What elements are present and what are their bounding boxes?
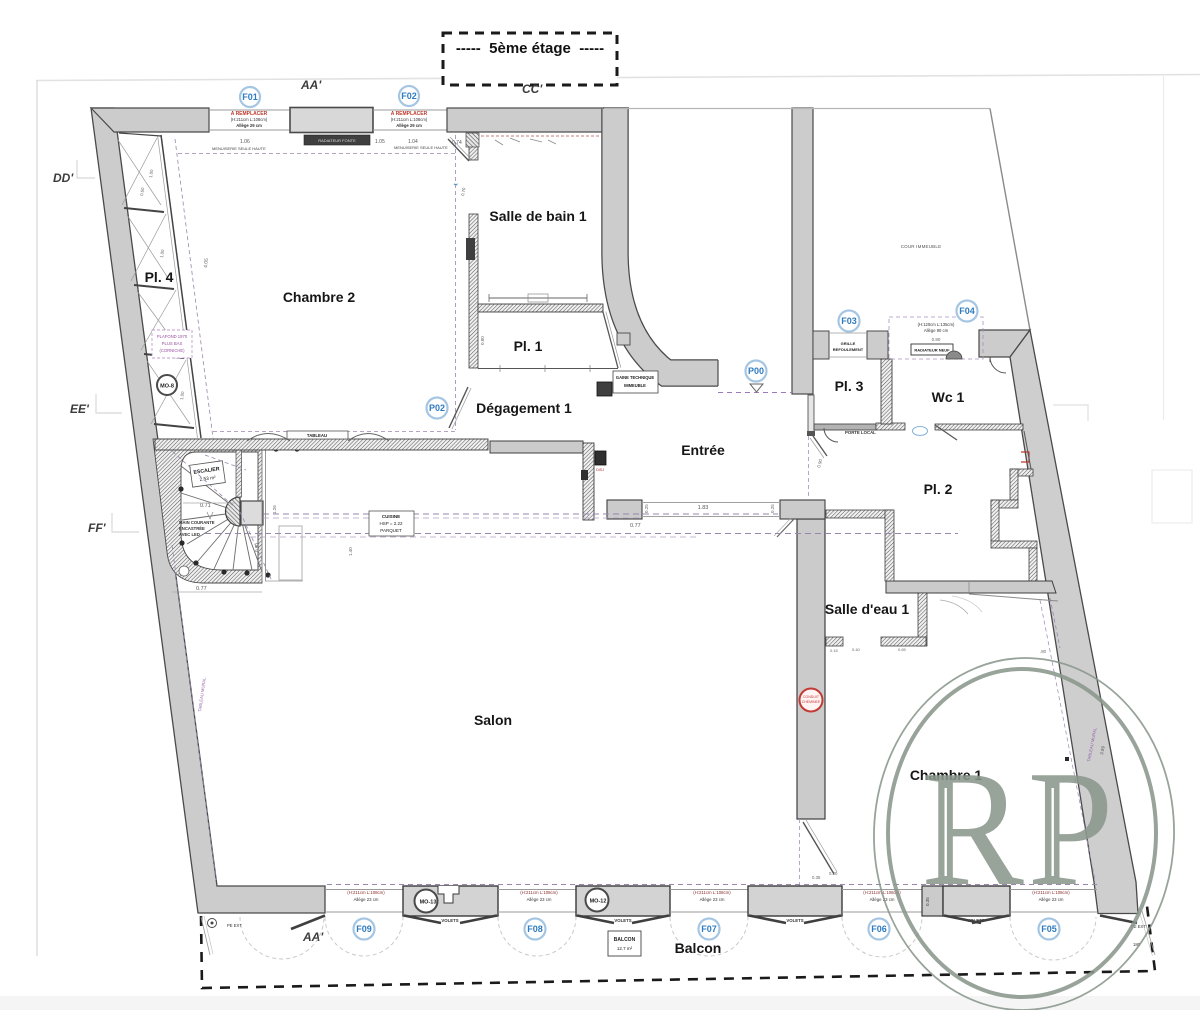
svg-text:Allège 23 cm: Allège 23 cm: [700, 897, 725, 902]
svg-text:MO-13: MO-13: [420, 900, 437, 906]
svg-text:CHEMINEE: CHEMINEE: [802, 700, 821, 704]
svg-text:Chambre 2: Chambre 2: [283, 289, 356, 305]
svg-text:Salon: Salon: [474, 712, 512, 728]
svg-text:AA': AA': [300, 78, 322, 92]
svg-text:F03: F03: [841, 316, 857, 326]
svg-text:F06: F06: [871, 924, 887, 934]
svg-text:0.15: 0.15: [830, 648, 839, 653]
svg-text:1.05: 1.05: [375, 139, 385, 145]
svg-text:EE': EE': [70, 402, 90, 416]
svg-text:0.65: 0.65: [898, 647, 907, 652]
svg-text:Pl. 1: Pl. 1: [514, 338, 543, 354]
svg-text:1.40: 1.40: [348, 547, 353, 556]
svg-text:Allège 29 cm: Allège 29 cm: [396, 123, 422, 128]
svg-text:F05: F05: [1041, 924, 1057, 934]
svg-text:4.05: 4.05: [203, 258, 210, 269]
svg-text:0.74: 0.74: [452, 140, 462, 146]
svg-text:F07: F07: [701, 924, 717, 934]
svg-text:(H:211cm L:108cm): (H:211cm L:108cm): [520, 890, 558, 895]
svg-text:0.77: 0.77: [196, 586, 207, 592]
svg-text:Dégagement 1: Dégagement 1: [476, 400, 572, 416]
svg-text:RADIATEUR FONTE: RADIATEUR FONTE: [318, 138, 356, 143]
svg-text:Entrée: Entrée: [681, 442, 725, 458]
svg-text:F08: F08: [527, 924, 543, 934]
svg-text:Allège 29 cm: Allège 29 cm: [236, 123, 262, 128]
svg-text:12.7 m²: 12.7 m²: [617, 946, 633, 951]
svg-text:DD': DD': [53, 171, 74, 185]
svg-text:AA': AA': [302, 930, 324, 944]
svg-text:MENUISERIE SEULE HAUTE: MENUISERIE SEULE HAUTE: [212, 146, 266, 151]
svg-text:1.26: 1.26: [272, 505, 277, 514]
svg-text:0.80: 0.80: [932, 337, 941, 342]
svg-text:Allège 23 cm: Allège 23 cm: [354, 897, 379, 902]
svg-text:0.25: 0.25: [644, 504, 649, 513]
svg-text:0.90: 0.90: [254, 543, 259, 552]
svg-text:0.71: 0.71: [200, 503, 211, 509]
svg-text:F01: F01: [242, 92, 258, 102]
svg-text:PLUS BAS: PLUS BAS: [162, 341, 183, 346]
svg-text:(H:120cm L:135cm): (H:120cm L:135cm): [918, 322, 955, 327]
svg-text:0.40: 0.40: [852, 647, 861, 652]
svg-text:Pl. 2: Pl. 2: [924, 481, 953, 497]
svg-text:(H:211cm L:108cm): (H:211cm L:108cm): [231, 117, 268, 122]
svg-text:P00: P00: [748, 366, 764, 376]
svg-text:MAIN COURANTE: MAIN COURANTE: [179, 520, 215, 525]
svg-text:Balcon: Balcon: [675, 940, 722, 956]
svg-text:Salle de bain 1: Salle de bain 1: [489, 208, 586, 224]
svg-text:VOLETS: VOLETS: [441, 918, 458, 923]
svg-text:PE EXT: PE EXT: [227, 923, 242, 928]
svg-text:MO-8: MO-8: [160, 384, 174, 390]
svg-text:HSP = 2.22: HSP = 2.22: [379, 521, 403, 526]
svg-text:MENUISERIE SEULE HAUTE: MENUISERIE SEULE HAUTE: [394, 145, 448, 150]
svg-text:CC': CC': [522, 82, 543, 96]
svg-text:PLAFOND 1970: PLAFOND 1970: [157, 334, 188, 339]
svg-text:GAINE TECHNIQUE: GAINE TECHNIQUE: [616, 375, 654, 380]
svg-text:(H:211cm L:108cm): (H:211cm L:108cm): [347, 890, 385, 895]
svg-text:Pl. 3: Pl. 3: [835, 378, 864, 394]
svg-text:(CORNICHE): (CORNICHE): [159, 348, 185, 353]
svg-text:RP: RP: [921, 736, 1117, 920]
svg-text:(H:211cm L:108cm): (H:211cm L:108cm): [693, 890, 731, 895]
svg-text:Allège 23 cm: Allège 23 cm: [870, 897, 895, 902]
svg-text:.80: .80: [1040, 649, 1047, 654]
svg-text:CUISINE: CUISINE: [382, 514, 400, 519]
svg-text:1.06: 1.06: [240, 139, 250, 145]
svg-text:REFOULEMENT: REFOULEMENT: [833, 347, 864, 352]
svg-text:PORTE LOCAL: PORTE LOCAL: [845, 430, 876, 435]
svg-text:ENCASTRÉE: ENCASTRÉE: [179, 526, 205, 531]
svg-text:VOLETS: VOLETS: [614, 918, 631, 923]
svg-text:CONDUIT: CONDUIT: [803, 695, 820, 699]
svg-text:P02: P02: [429, 403, 445, 413]
svg-text:F04: F04: [959, 306, 975, 316]
svg-text:0.25: 0.25: [770, 504, 775, 513]
svg-text:PARQUET: PARQUET: [380, 528, 402, 533]
svg-text:FF': FF': [88, 521, 107, 535]
svg-text:F02: F02: [401, 91, 417, 101]
svg-text:DISJ: DISJ: [596, 468, 604, 472]
svg-text:0.77: 0.77: [630, 523, 641, 529]
svg-text:----- 5ème étage -----: ----- 5ème étage -----: [456, 40, 604, 57]
svg-text:RADIATEUR NEUF: RADIATEUR NEUF: [914, 348, 950, 353]
svg-text:AVEC LED: AVEC LED: [179, 532, 200, 537]
svg-text:0.35: 0.35: [812, 875, 821, 880]
svg-text:IMMEUBLE: IMMEUBLE: [624, 383, 646, 388]
svg-text:Allège 90 cm: Allège 90 cm: [924, 328, 949, 333]
svg-text:GRILLE: GRILLE: [841, 341, 856, 346]
svg-text:Salle d'eau 1: Salle d'eau 1: [825, 601, 909, 617]
svg-text:MO-12: MO-12: [590, 899, 607, 905]
svg-text:Pl. 4: Pl. 4: [145, 269, 174, 285]
svg-text:Allège 23 cm: Allège 23 cm: [527, 897, 552, 902]
svg-text:(H:211cm L:108cm): (H:211cm L:108cm): [391, 117, 428, 122]
svg-text:1.83: 1.83: [698, 505, 709, 511]
svg-text:TABLEAU: TABLEAU: [307, 433, 327, 438]
svg-text:Wc 1: Wc 1: [932, 389, 965, 405]
svg-text:0.80: 0.80: [480, 336, 485, 345]
svg-text:0.20: 0.20: [829, 871, 838, 876]
svg-text:COUR IMMEUBLE: COUR IMMEUBLE: [901, 244, 942, 249]
svg-text:VOLETS: VOLETS: [786, 918, 803, 923]
svg-text:F09: F09: [356, 924, 372, 934]
svg-text:BALCON: BALCON: [614, 937, 636, 943]
